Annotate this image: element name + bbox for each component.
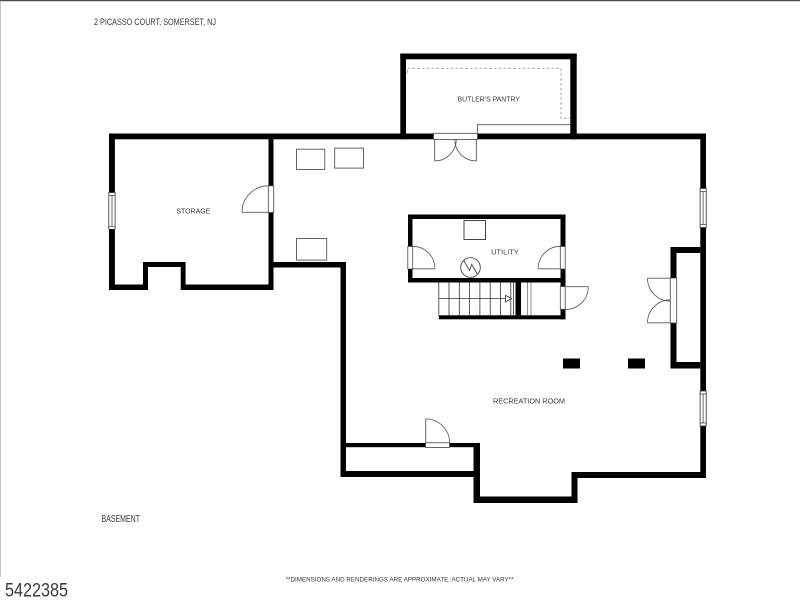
svg-text:5422385: 5422385 [5, 580, 68, 600]
svg-text:STORAGE: STORAGE [176, 207, 210, 216]
svg-text:RECREATION ROOM: RECREATION ROOM [493, 396, 565, 405]
svg-text:BUTLER'S PANTRY: BUTLER'S PANTRY [458, 94, 521, 103]
svg-text:**DIMENSIONS AND RENDERINGS AR: **DIMENSIONS AND RENDERINGS ARE APPROXIM… [286, 576, 514, 583]
svg-text:BASEMENT: BASEMENT [102, 514, 141, 525]
svg-text:2 PICASSO COURT, SOMERSET, NJ: 2 PICASSO COURT, SOMERSET, NJ [94, 17, 216, 28]
svg-text:UTILITY: UTILITY [491, 248, 519, 257]
